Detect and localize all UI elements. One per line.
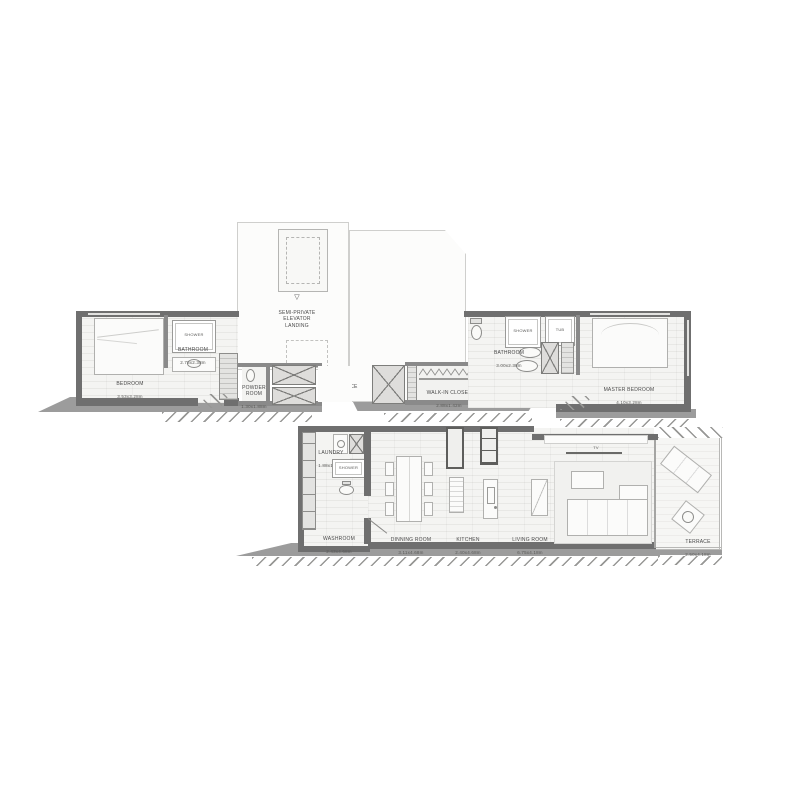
bedroom-label: BEDROOM 3.53x3.28m <box>98 374 162 406</box>
master-bedroom-label: MASTER BEDROOM 4.10x3.28m <box>594 380 664 412</box>
kitchen-faucet-icon <box>494 506 497 509</box>
bathroom-right-label: BATHROOM 3.00x2.38m <box>486 343 532 375</box>
elevator-landing-label: SEMI-PRIVATE ELEVATOR LANDING <box>265 303 329 336</box>
hall-closet-lower <box>272 387 316 405</box>
floor-plan-canvas: ▽ SEMI-PRIVATE ELEVATOR LANDING ENTRANCE… <box>0 0 800 800</box>
washroom-label: WASHROOM 2.43x4.68m <box>310 529 368 561</box>
tv-label: TV <box>544 446 648 450</box>
kitchen-counter <box>483 479 498 519</box>
laundry-cabinet <box>349 434 364 454</box>
tub-label: TUB <box>545 328 575 332</box>
sofa <box>567 499 648 536</box>
dining-chair-r2 <box>424 482 433 496</box>
elevator-symbol: ▽ <box>273 294 321 301</box>
toilet-right-bowl <box>471 325 482 340</box>
washroom-dining-wall-upper <box>364 428 371 496</box>
shadow-hatch-terrace-top <box>657 427 723 438</box>
living-terrace-glass <box>654 440 656 548</box>
bedroom-name: BEDROOM <box>98 381 162 388</box>
left-wing-wall-left <box>76 311 82 406</box>
bed-fold-line <box>97 329 159 338</box>
shower-right-label: SHOWER <box>505 329 541 333</box>
master-bath-cabinet <box>541 342 559 374</box>
coffee-table <box>571 471 604 489</box>
dining-chair-l1 <box>385 462 394 476</box>
dining-chair-l3 <box>385 502 394 516</box>
elevator-landing-name: SEMI-PRIVATE ELEVATOR LANDING <box>265 310 329 330</box>
laundry-name: LAUNDRY <box>312 450 350 457</box>
dining-table <box>396 456 422 522</box>
powder-room-dims: 1.30x1.88m <box>238 404 270 410</box>
washroom-dining-wall-lower <box>364 518 371 544</box>
bathroom-right-name: BATHROOM <box>486 350 532 357</box>
master-bedroom-dims: 4.10x3.28m <box>594 400 664 406</box>
masterbath-bedroom-divider <box>576 315 580 375</box>
kitchen-dims: 2.40x4.68m <box>442 550 494 556</box>
washroom-name: WASHROOM <box>310 536 368 543</box>
hall-closet-right <box>372 365 405 404</box>
terrace-side-table-top <box>680 509 697 526</box>
kitchen-label: KITCHEN 2.40x4.68m <box>442 530 494 562</box>
washroom-toilet-bowl <box>339 485 354 495</box>
dining-chair-l2 <box>385 482 394 496</box>
powder-room-name: POWDER ROOM <box>238 385 270 398</box>
terrace-name: TERRACE <box>674 539 722 546</box>
living-room-label: LIVING ROOM 6.75x4.18m <box>502 530 558 562</box>
elevator-shaft-inner <box>286 237 320 284</box>
kitchen-tall-cabinet-2 <box>480 427 498 465</box>
bedroom-dims: 3.53x3.28m <box>98 394 162 400</box>
master-bed <box>592 318 668 368</box>
washroom-dims: 2.43x4.68m <box>310 549 368 555</box>
terrace-label: TERRACE 2.50x4.18m <box>674 532 722 564</box>
bathroom-left-dims: 2.78x2.38m <box>166 360 220 366</box>
armchair <box>531 479 548 516</box>
powder-room-label: POWDER ROOM 1.30x1.88m <box>238 378 270 416</box>
tv-niche <box>544 435 648 444</box>
bed-fold-line-2 <box>97 339 137 344</box>
corridor-floor <box>318 366 352 402</box>
bed <box>94 318 164 375</box>
left-wing-window <box>88 313 160 315</box>
shadow-hatch-right-wing <box>560 419 690 427</box>
dining-room-name: DINNING ROOM <box>382 537 440 544</box>
master-bath-shelves <box>561 342 574 374</box>
living-room-dims: 6.75x4.18m <box>502 550 558 556</box>
dining-table-centerline <box>409 457 410 521</box>
kitchen-name: KITCHEN <box>442 537 494 544</box>
master-bedroom-name: MASTER BEDROOM <box>594 387 664 394</box>
master-window-right <box>687 320 689 376</box>
master-window-top <box>590 313 670 315</box>
washroom-shower-label: SHOWER <box>332 466 365 470</box>
dining-room-label: DINNING ROOM 3.11x4.68m <box>382 530 440 562</box>
tv-line <box>566 452 622 454</box>
shower-left-label: SHOWER <box>172 333 216 337</box>
dining-room-dims: 3.11x4.68m <box>382 550 440 556</box>
kitchen-tall-cabinet <box>446 427 464 469</box>
master-bed-pillow-arc <box>601 323 659 335</box>
shadow-hatch-center <box>162 412 312 422</box>
kitchen-island <box>449 477 464 513</box>
living-room-name: LIVING ROOM <box>502 537 558 544</box>
hall-closet-upper <box>272 365 316 385</box>
bathroom-left-label: BATHROOM 2.78x2.38m <box>166 340 220 372</box>
kitchen-sink <box>487 487 495 504</box>
hall-cabinet-slatted <box>407 365 417 404</box>
dining-chair-r3 <box>424 502 433 516</box>
bathroom-right-dims: 3.00x2.38m <box>486 363 532 369</box>
dining-chair-r1 <box>424 462 433 476</box>
terrace-dims: 2.50x4.18m <box>674 552 722 558</box>
toilet-right-tank <box>470 318 482 324</box>
bathroom-left-name: BATHROOM <box>166 347 220 354</box>
left-wardrobe <box>219 353 238 400</box>
sofa-chaise <box>619 485 648 500</box>
